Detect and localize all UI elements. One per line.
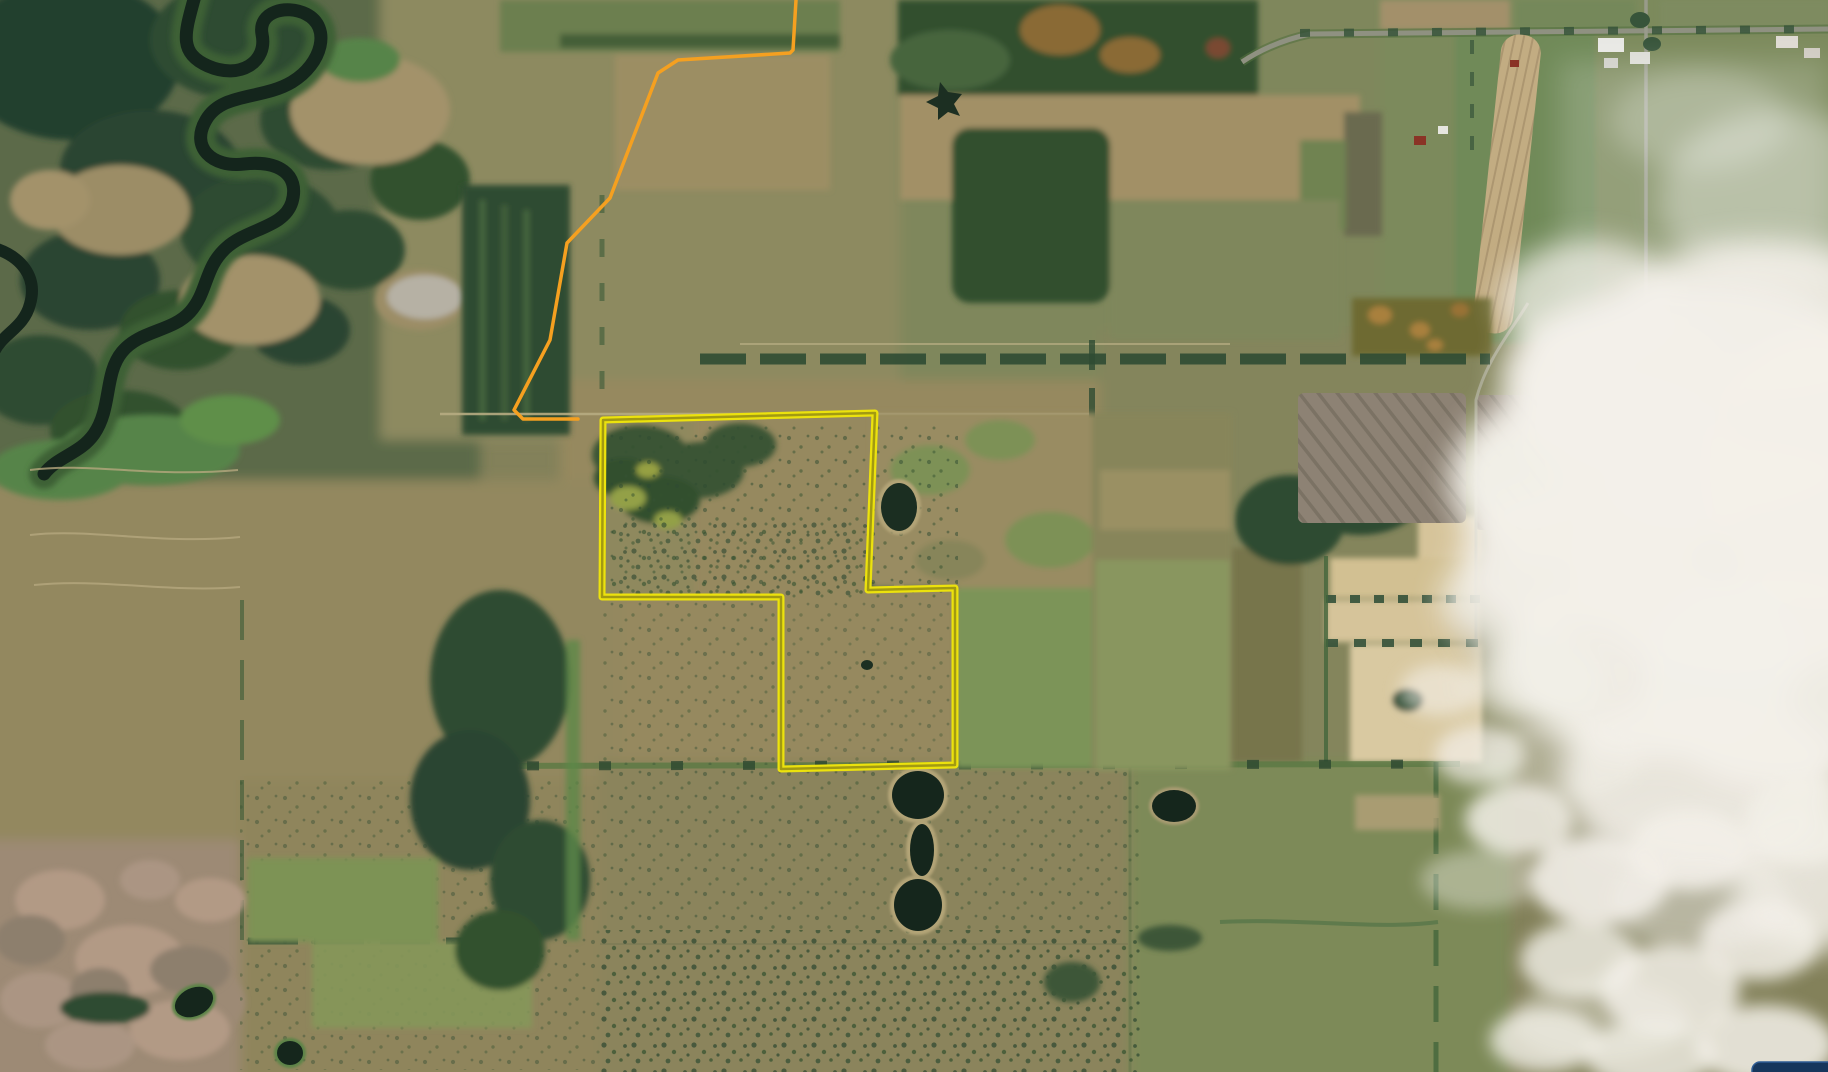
- map-viewport[interactable]: [0, 0, 1828, 1072]
- pond: [274, 1038, 306, 1068]
- pond: [1149, 787, 1199, 825]
- plowed-field: [1298, 393, 1466, 523]
- satellite-map[interactable]: [0, 0, 1828, 1072]
- pond: [877, 479, 921, 535]
- panel-corner[interactable]: [1752, 1062, 1828, 1072]
